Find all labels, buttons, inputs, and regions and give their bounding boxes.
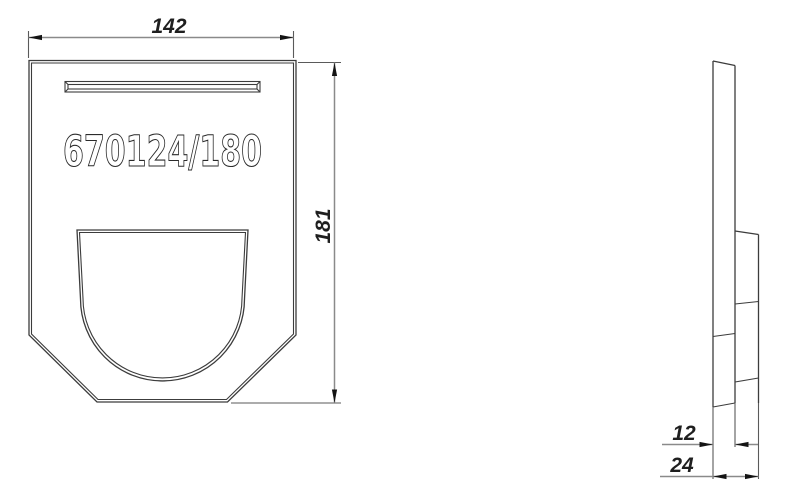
u-pocket-outer bbox=[77, 230, 248, 381]
dim-height-arrow-top bbox=[332, 63, 337, 77]
slot-inner-rect bbox=[68, 85, 257, 90]
front-outline-inner bbox=[32, 63, 294, 400]
dim-12-arrow-left bbox=[700, 442, 714, 447]
side-edge-line-1 bbox=[735, 302, 759, 305]
dim-24-arrow-left bbox=[713, 474, 727, 479]
front-view: 670124/180 bbox=[29, 61, 296, 403]
dim-12-value: 12 bbox=[672, 422, 696, 445]
dim-24-arrow-right bbox=[745, 474, 759, 479]
dim-12-arrow-right bbox=[735, 442, 749, 447]
side-view bbox=[713, 61, 759, 407]
side-boss-top-edge bbox=[735, 231, 759, 235]
engineering-drawing: 670124/180 142 181 bbox=[0, 0, 794, 500]
dim-height-arrow-bottom bbox=[332, 390, 337, 404]
dim-height-value: 181 bbox=[312, 208, 335, 243]
dim-width-value: 142 bbox=[151, 15, 186, 38]
slot-corner-lines bbox=[65, 82, 260, 93]
slot-outer-rect bbox=[65, 82, 260, 93]
side-bottom-edge bbox=[713, 403, 735, 407]
dim-width-arrow-right bbox=[280, 35, 294, 40]
u-pocket bbox=[77, 230, 248, 381]
dimension-width: 142 bbox=[29, 15, 294, 58]
part-number-engraving: 670124/180 bbox=[63, 127, 262, 177]
side-top-edge bbox=[713, 61, 735, 66]
dim-24-value: 24 bbox=[669, 454, 694, 477]
side-edge-line-2 bbox=[713, 334, 735, 337]
dim-width-arrow-left bbox=[29, 35, 43, 40]
side-edge-line-3 bbox=[735, 378, 759, 382]
technical-drawing-canvas: 670124/180 142 181 bbox=[0, 0, 794, 500]
slot-engraving bbox=[65, 82, 260, 93]
front-outline-outer bbox=[29, 61, 296, 403]
